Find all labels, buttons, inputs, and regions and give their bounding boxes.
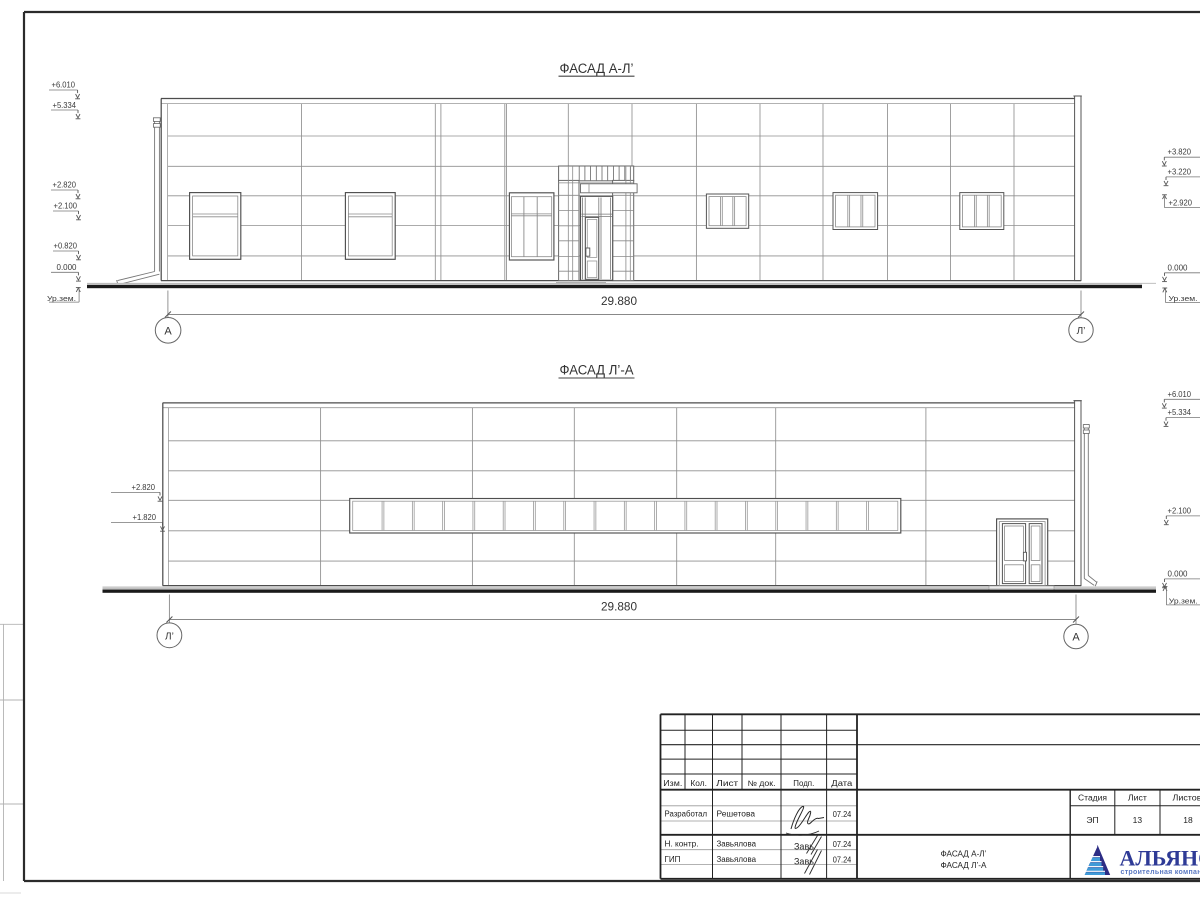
svg-text:Завьялова: Завьялова [717,840,757,849]
svg-text:07.24: 07.24 [833,810,852,819]
svg-text:+6.010: +6.010 [1168,390,1192,399]
svg-text:Н. контр.: Н. контр. [665,840,699,849]
svg-text:+1.820: +1.820 [133,513,157,522]
svg-text:строительная компания: строительная компания [1121,869,1200,876]
svg-text:Л’: Л’ [165,631,174,642]
svg-text:А: А [164,325,172,337]
svg-text:Лист: Лист [1128,794,1147,803]
svg-text:+2.820: +2.820 [132,483,156,492]
svg-text:13: 13 [1133,815,1143,825]
svg-text:Листов: Листов [1173,794,1200,803]
svg-text:ФАСАД Л’-А: ФАСАД Л’-А [560,363,634,378]
svg-text:Дата: Дата [831,779,853,788]
svg-text:+2.100: +2.100 [54,202,78,211]
svg-text:Подп.: Подп. [793,779,814,788]
svg-text:ФАСАД А-Л’: ФАСАД А-Л’ [560,61,634,76]
svg-text:Ур.зем.: Ур.зем. [47,294,76,303]
svg-text:АЛЬЯНС: АЛЬЯНС [1120,846,1200,871]
svg-text:ЭП: ЭП [1086,815,1098,825]
svg-text:+0.820: +0.820 [54,242,78,251]
svg-text:А: А [1072,632,1080,644]
svg-text:18: 18 [1183,815,1193,825]
svg-text:0.000: 0.000 [1168,569,1189,578]
svg-text:+2.920: +2.920 [1169,198,1193,207]
svg-text:ФАСАД Л’-А: ФАСАД Л’-А [941,861,988,870]
svg-text:Ур.зем.: Ур.зем. [1169,294,1198,303]
svg-text:Завьялова: Завьялова [717,855,757,864]
svg-text:Изм.: Изм. [663,779,682,788]
svg-text:0.000: 0.000 [1168,263,1189,272]
svg-text:+5.334: +5.334 [1168,408,1192,417]
svg-text:+3.820: +3.820 [1168,148,1192,157]
svg-text:07.24: 07.24 [833,840,852,849]
svg-text:+5.334: +5.334 [53,101,77,110]
svg-text:Кол.: Кол. [690,779,707,788]
svg-text:ФАСАД А-Л’: ФАСАД А-Л’ [941,850,987,859]
svg-text:ГИП: ГИП [665,855,681,864]
svg-text:Ур.зем.: Ур.зем. [1169,596,1198,605]
svg-text:Решетова: Решетова [717,809,756,818]
svg-text:№ док.: № док. [748,779,776,788]
svg-text:29.880: 29.880 [601,296,637,308]
svg-text:+6.010: +6.010 [52,81,76,90]
svg-text:0.000: 0.000 [57,263,78,272]
svg-text:+2.100: +2.100 [1168,506,1192,515]
svg-text:Разработал: Разработал [665,809,708,818]
svg-text:Л’: Л’ [1077,326,1086,337]
svg-text:29.880: 29.880 [601,601,637,613]
svg-text:Лист: Лист [716,779,739,788]
svg-text:+3.220: +3.220 [1168,167,1192,176]
svg-text:+2.820: +2.820 [53,181,77,190]
svg-text:07.24: 07.24 [833,855,852,864]
svg-text:Стадия: Стадия [1078,794,1107,803]
